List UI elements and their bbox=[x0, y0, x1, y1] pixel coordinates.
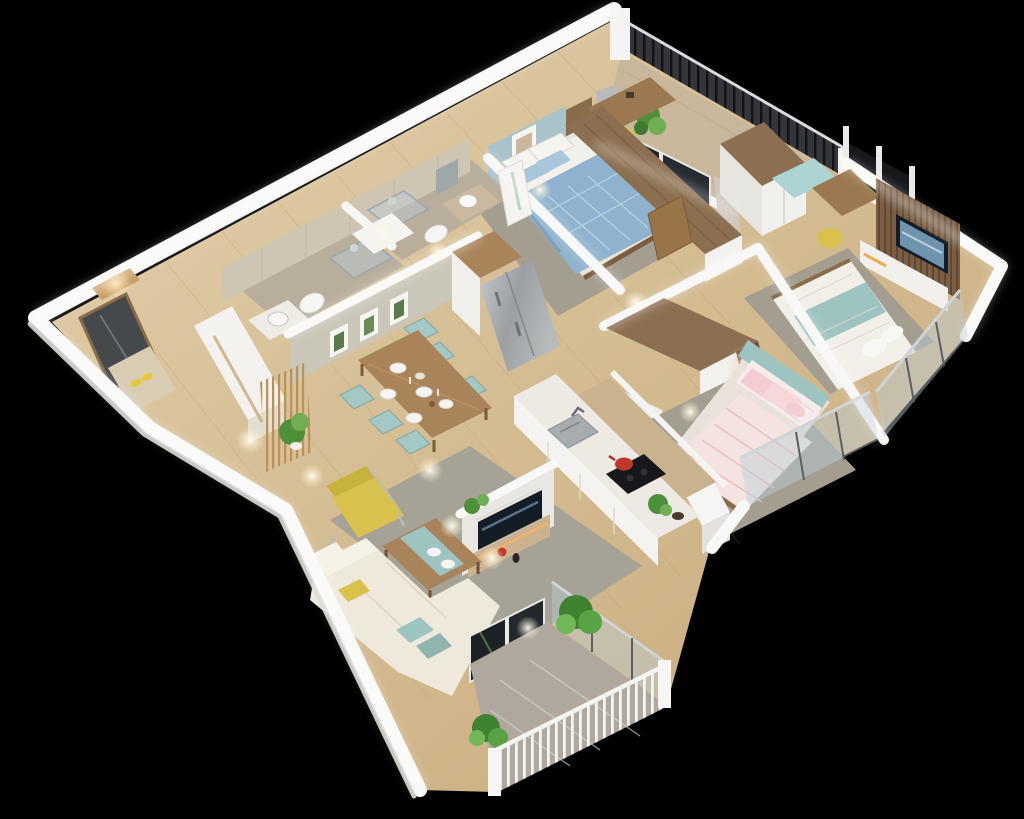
vestibule-glow bbox=[366, 218, 398, 250]
bath-1-sink-bowl bbox=[268, 312, 288, 326]
bath-2-sink-bowl bbox=[459, 195, 477, 208]
balcony-2-post-left bbox=[488, 748, 501, 796]
burner-2 bbox=[641, 469, 648, 476]
red-pot bbox=[615, 458, 633, 471]
render-canvas bbox=[0, 0, 1024, 819]
partition-fern-2 bbox=[291, 413, 309, 431]
balcony-2-post-right bbox=[658, 660, 671, 708]
desk-items bbox=[626, 92, 634, 98]
bath-1-shower-head bbox=[350, 244, 358, 252]
burner-1 bbox=[627, 475, 634, 482]
table-plate-1 bbox=[427, 548, 441, 557]
dark-vase bbox=[513, 553, 520, 563]
bedroom-2-stool bbox=[817, 228, 843, 248]
kitchen-herb-plant-2 bbox=[660, 504, 672, 516]
fern-pot bbox=[290, 442, 302, 450]
console-plant-2 bbox=[477, 494, 489, 506]
serving-bowl bbox=[429, 401, 435, 407]
spice-stand bbox=[672, 512, 684, 520]
table-plate-2 bbox=[441, 560, 455, 569]
bath-2-shower-head bbox=[388, 197, 396, 205]
floorplan-svg bbox=[0, 0, 1024, 819]
